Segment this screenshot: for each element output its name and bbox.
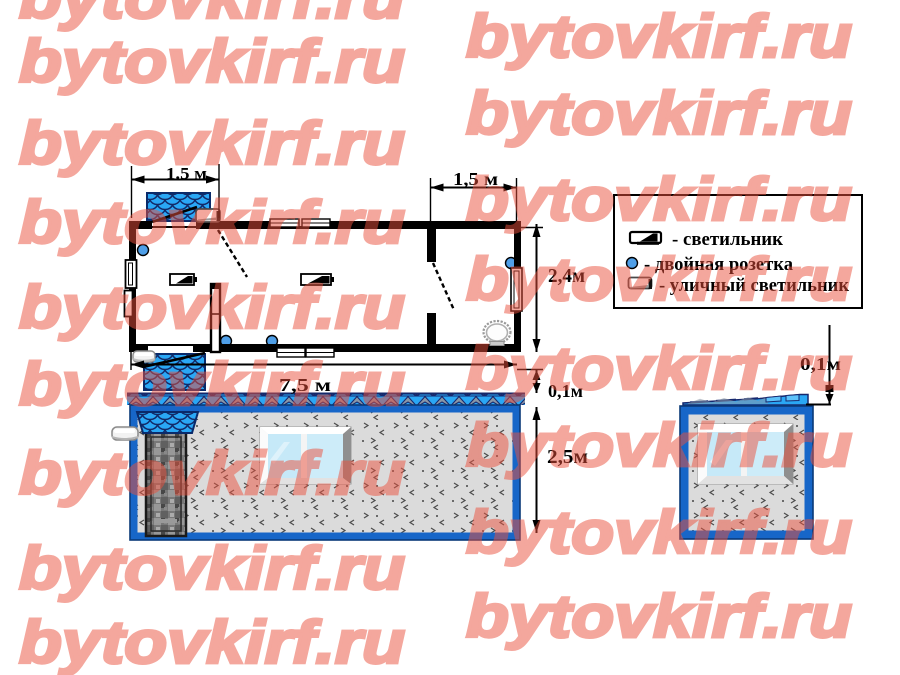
svg-text:bytovkirf.ru: bytovkirf.ru — [466, 166, 852, 233]
svg-text:bytovkirf.ru: bytovkirf.ru — [19, 440, 405, 507]
svg-text:bytovkirf.ru: bytovkirf.ru — [19, 274, 405, 341]
svg-text:bytovkirf.ru: bytovkirf.ru — [19, 110, 405, 177]
svg-text:bytovkirf.ru: bytovkirf.ru — [466, 3, 852, 70]
svg-text:bytovkirf.ru: bytovkirf.ru — [19, 0, 405, 31]
svg-text:bytovkirf.ru: bytovkirf.ru — [19, 609, 405, 675]
svg-text:bytovkirf.ru: bytovkirf.ru — [19, 189, 405, 256]
svg-text:bytovkirf.ru: bytovkirf.ru — [466, 583, 852, 650]
svg-text:bytovkirf.ru: bytovkirf.ru — [19, 351, 405, 418]
svg-text:bytovkirf.ru: bytovkirf.ru — [466, 335, 852, 402]
svg-text:bytovkirf.ru: bytovkirf.ru — [19, 28, 405, 95]
svg-text:bytovkirf.ru: bytovkirf.ru — [19, 535, 405, 602]
svg-text:bytovkirf.ru: bytovkirf.ru — [466, 80, 852, 147]
svg-text:bytovkirf.ru: bytovkirf.ru — [466, 412, 852, 479]
svg-text:bytovkirf.ru: bytovkirf.ru — [466, 499, 852, 566]
svg-text:bytovkirf.ru: bytovkirf.ru — [466, 246, 852, 313]
